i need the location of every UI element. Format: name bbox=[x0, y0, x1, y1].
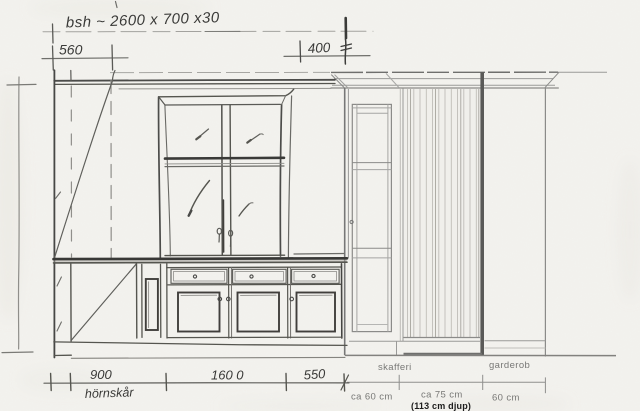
svg-text:(113 cm djup): (113 cm djup) bbox=[411, 401, 471, 411]
svg-text:900: 900 bbox=[90, 367, 112, 382]
svg-text:560: 560 bbox=[59, 42, 83, 58]
svg-text:550: 550 bbox=[303, 366, 326, 383]
svg-text:60 cm: 60 cm bbox=[492, 393, 520, 404]
svg-text:ca 60 cm: ca 60 cm bbox=[351, 392, 393, 403]
svg-text:skafferi: skafferi bbox=[378, 362, 412, 373]
svg-text:ca 75 cm: ca 75 cm bbox=[421, 390, 463, 401]
svg-text:hörnskår: hörnskår bbox=[85, 385, 135, 401]
svg-text:160 0: 160 0 bbox=[211, 368, 244, 383]
svg-text:garderob: garderob bbox=[489, 360, 530, 371]
svg-text:400: 400 bbox=[307, 40, 331, 56]
